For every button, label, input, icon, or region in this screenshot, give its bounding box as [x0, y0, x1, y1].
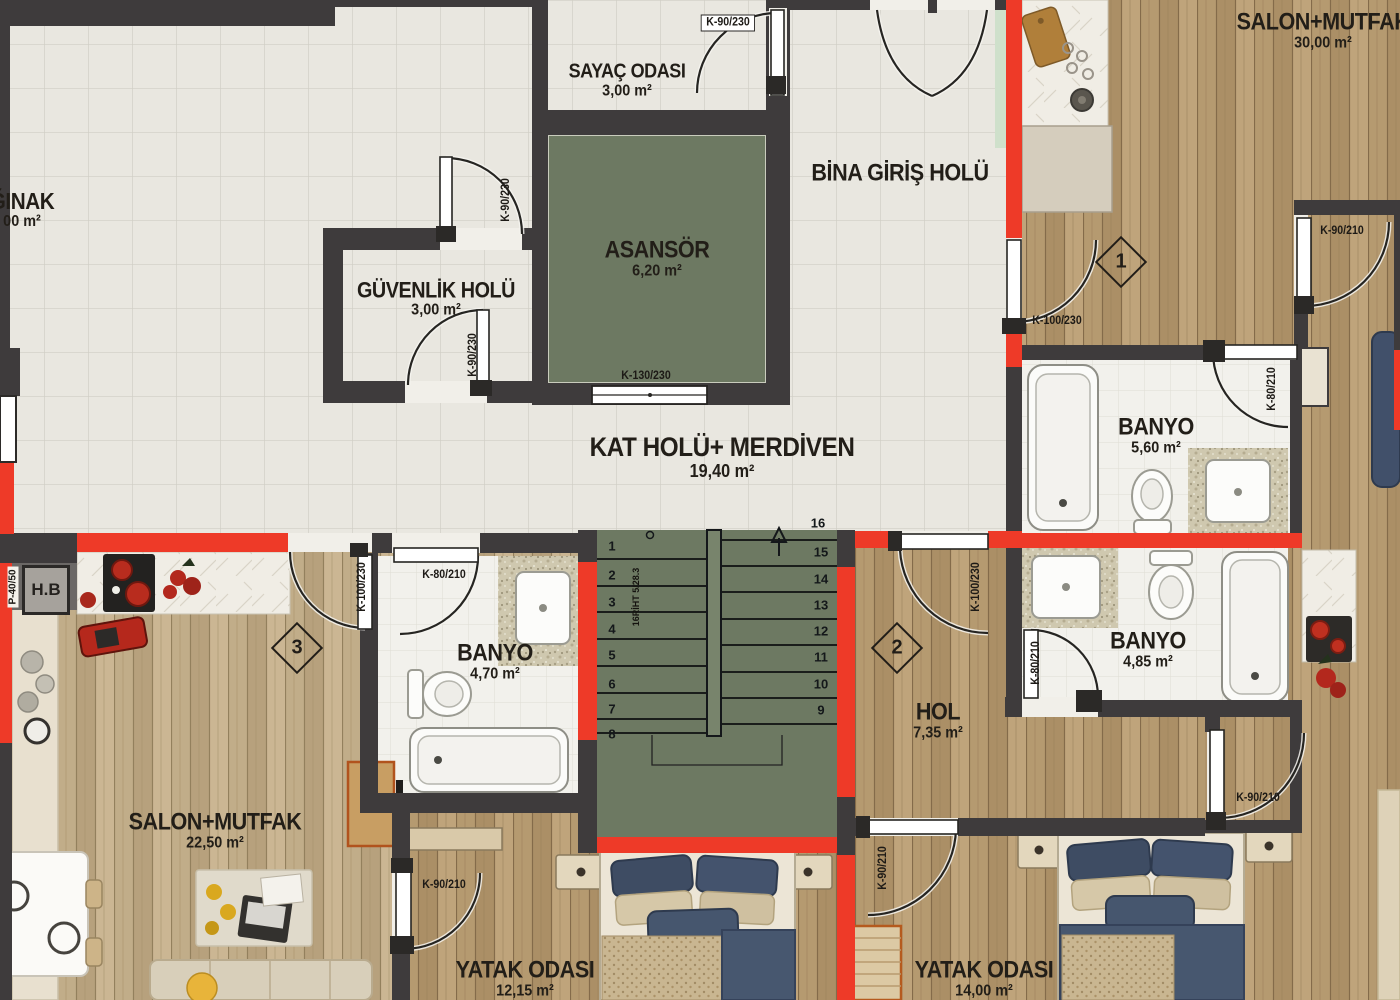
- door-label-yatak-orta: K-90/210: [422, 879, 466, 891]
- stair-step-3: 3: [608, 595, 615, 610]
- stair-step-11: 11: [814, 650, 828, 665]
- stair-step-6: 6: [608, 677, 615, 692]
- room-label-asansor: ASANSÖR 6,20 m²: [605, 238, 710, 281]
- coffee-maker-icon: [25, 719, 49, 743]
- stair-step-15: 15: [814, 545, 828, 560]
- sofa-icon: [150, 960, 372, 1000]
- room-label-hol: HOL 7,35 m²: [913, 700, 963, 743]
- door-label-banyo-mid: K-80/210: [1030, 641, 1042, 685]
- stair-step-4: 4: [608, 622, 615, 637]
- room-label-banyo-485: BANYO 4,85 m²: [1110, 629, 1186, 672]
- hb-box: H.B: [22, 565, 70, 615]
- kitchen-counter-apt3: [77, 552, 290, 614]
- magazine-icon: [261, 874, 304, 906]
- stair-spine-wall: [707, 530, 721, 736]
- stair-riser-note: 16RİHT 5/28.3: [631, 568, 641, 627]
- door-label-sayac: K-90/230: [701, 15, 756, 32]
- stove-icon: [1306, 616, 1352, 662]
- room-label-guvenlik-holu: GÜVENLİK HOLÜ 3,00 m²: [357, 279, 515, 320]
- door-label-apt3-entry: K-100/230: [356, 562, 368, 611]
- stair-step-16: 16: [811, 516, 825, 531]
- room-label-salon-mutfak-sol: SALON+MUTFAK 22,50 m²: [129, 810, 302, 853]
- room-label-kat-holu-merdiven: KAT HOLÜ+ MERDİVEN 19,40 m²: [590, 433, 855, 481]
- room-label-banyo-470: BANYO 4,70 m²: [457, 641, 533, 684]
- floor-plan: ĞINAK 00 m² SAYAÇ ODASI 3,00 m² BİNA GİR…: [0, 0, 1400, 1000]
- toilet-icon: [1149, 551, 1193, 619]
- cabinet-icon: [1298, 348, 1328, 406]
- door-label-banyo-top: K-80/210: [1266, 367, 1278, 411]
- stair-step-13: 13: [814, 598, 828, 613]
- door-label-guvenlik-upper: K-90/230: [500, 178, 512, 222]
- rug-icon: [196, 870, 312, 946]
- door-label-yatak-sag: K-90/210: [877, 846, 889, 890]
- stair-step-12: 12: [814, 624, 828, 639]
- door-label-asansor: K-130/230: [621, 370, 670, 382]
- toilet-icon: [1132, 470, 1172, 534]
- door-label-apt2-entry: K-100/230: [970, 562, 982, 611]
- small-pot-icon: [80, 592, 96, 608]
- dresser-icon: [408, 828, 502, 850]
- room-label-salon-mutfak-sag: SALON+MUTFAK 30,00 m²: [1237, 10, 1400, 53]
- room-label-siginak: ĞINAK 00 m²: [0, 189, 54, 231]
- stair-step-7: 7: [608, 702, 615, 717]
- glass-panel: [995, 10, 1006, 148]
- wardrobe-icon: [853, 926, 901, 1000]
- door-label-right-room: K-90/210: [1236, 792, 1280, 804]
- kitchen-counter-apt1: [1021, 0, 1112, 212]
- stair-step-9: 9: [817, 703, 824, 718]
- stair-step-8: 8: [608, 727, 615, 742]
- elevator-door: [552, 384, 747, 404]
- room-label-yatak-odasi-sag: YATAK ODASI 14,00 m²: [915, 958, 1054, 1000]
- room-label-bina-giris-holu: BİNA GİRİŞ HOLÜ: [811, 160, 988, 185]
- stair-step-10: 10: [814, 677, 828, 692]
- stair-step-14: 14: [814, 572, 828, 587]
- dining-table-icon: [0, 852, 102, 976]
- stair-step-2: 2: [608, 568, 615, 583]
- door-label-banyo-left: K-80/210: [422, 569, 466, 581]
- stair-step-1: 1: [608, 539, 615, 554]
- window: [0, 396, 16, 462]
- door-label-apt1-room: K-90/210: [1320, 225, 1364, 237]
- stair-step-5: 5: [608, 648, 615, 663]
- rug-sliver: [1378, 790, 1400, 1000]
- door-label-guvenlik-lower: K-90/230: [467, 333, 479, 377]
- room-label-banyo-560: BANYO 5,60 m²: [1118, 415, 1194, 458]
- room-label-sayac-odasi: SAYAÇ ODASI 3,00 m²: [569, 62, 686, 101]
- room-label-yatak-odasi-orta: YATAK ODASI 12,15 m²: [456, 958, 595, 1000]
- p-40-50-label: P-40/50: [8, 566, 19, 607]
- pillow-icon: [187, 973, 217, 1000]
- door-label-apt1-entry: K-100/230: [1032, 315, 1081, 327]
